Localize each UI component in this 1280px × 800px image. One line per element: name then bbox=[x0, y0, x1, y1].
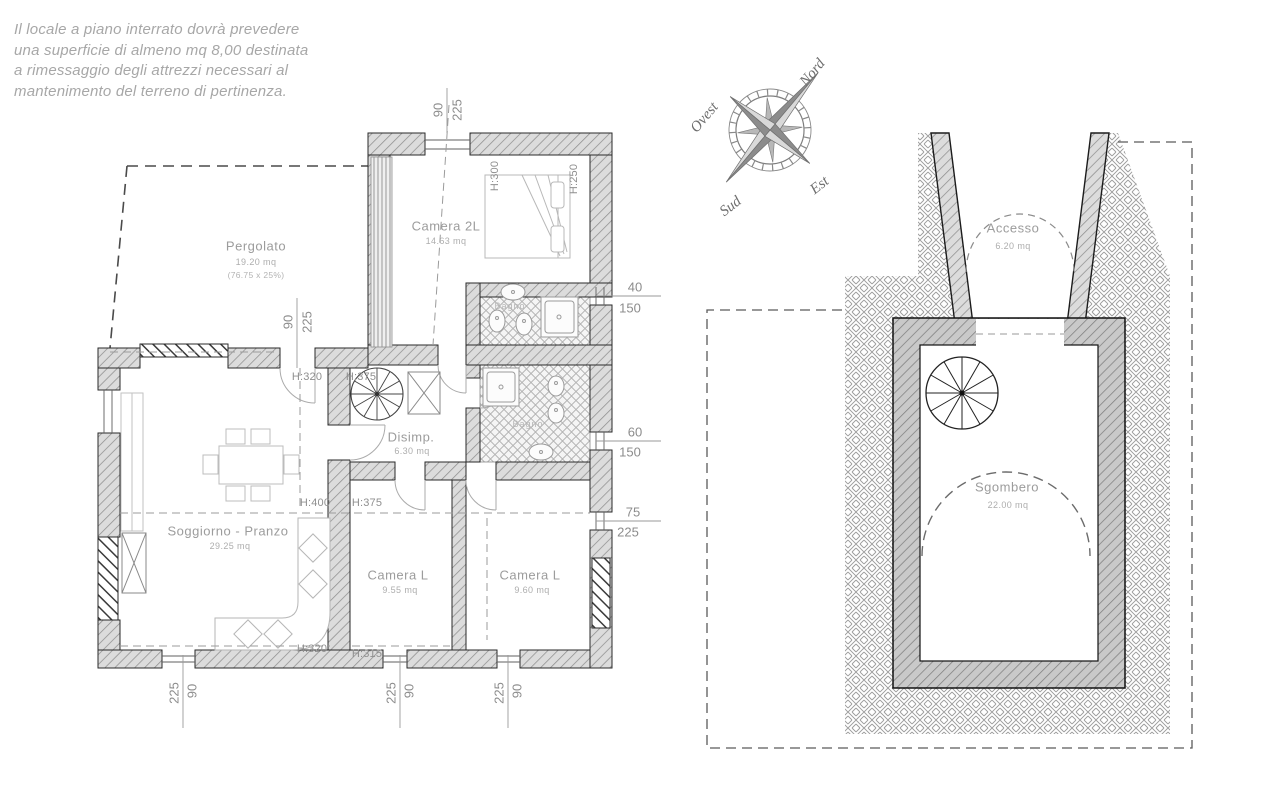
note-line: una superficie di almeno mq 8,00 destina… bbox=[14, 41, 308, 62]
fireplace-stove bbox=[122, 533, 146, 593]
window-sill-striped bbox=[140, 344, 228, 357]
height-label: H:250 bbox=[568, 164, 580, 194]
note-line: Il locale a piano interrato dovrà preved… bbox=[14, 20, 308, 41]
fireplace-striped bbox=[98, 537, 118, 620]
basement-plan bbox=[707, 133, 1192, 748]
height-label: H:375 bbox=[352, 497, 382, 509]
room-area-disimpegno: 6.30 mq bbox=[394, 446, 429, 456]
dimension-value: 90 bbox=[281, 315, 296, 329]
dimension-value: 150 bbox=[619, 445, 641, 460]
room-label-accesso: Accesso bbox=[987, 221, 1040, 236]
dimension-value: 225 bbox=[450, 99, 465, 121]
room-label-camera-l-1: Camera L bbox=[367, 568, 428, 583]
dining-table bbox=[203, 429, 299, 501]
basement-entry-opening bbox=[976, 319, 1064, 346]
dimension-value: 90 bbox=[510, 684, 525, 698]
dimension-value: 225 bbox=[492, 682, 507, 704]
room-area-camera-2l: 14.63 mq bbox=[426, 236, 467, 246]
compass-rose bbox=[686, 39, 858, 215]
room-label-soggiorno: Soggiorno - Pranzo bbox=[167, 524, 288, 539]
note-line: mantenimento del terreno di pertinenza. bbox=[14, 82, 308, 103]
room-area-sgombero: 22.00 mq bbox=[988, 500, 1029, 510]
dimension-value: 225 bbox=[617, 525, 639, 540]
room-note-pergolato: (76.75 x 25%) bbox=[228, 270, 285, 280]
room-area-camera-l-2: 9.60 mq bbox=[514, 585, 549, 595]
note-line: a rimessaggio degli attrezzi necessari a… bbox=[14, 61, 308, 82]
shaft-box bbox=[408, 372, 440, 414]
room-label-bagno-2: Bagno bbox=[512, 419, 543, 429]
height-label: H:315 bbox=[352, 648, 382, 660]
dimension-value: 90 bbox=[185, 684, 200, 698]
floor-plan-sheet: Il locale a piano interrato dovrà preved… bbox=[0, 0, 1280, 800]
room-area-soggiorno: 29.25 mq bbox=[210, 541, 251, 551]
height-label: H:300 bbox=[489, 161, 501, 191]
dimension-value: 225 bbox=[167, 682, 182, 704]
height-label: H:400 bbox=[300, 497, 330, 509]
height-label: H:320 bbox=[292, 371, 322, 383]
room-label-disimpegno: Disimp. bbox=[388, 430, 435, 445]
dimension-value: 60 bbox=[628, 425, 642, 440]
room-label-bagno-1: Bagno bbox=[494, 301, 525, 311]
kitchen-counter bbox=[121, 393, 143, 531]
dimension-value: 90 bbox=[431, 103, 446, 117]
room-area-accesso: 6.20 mq bbox=[995, 241, 1030, 251]
dimension-value: 40 bbox=[628, 280, 642, 295]
plan-note: Il locale a piano interrato dovrà preved… bbox=[14, 20, 308, 103]
room-label-camera-2l: Camera 2L bbox=[412, 219, 481, 234]
height-label: H:375 bbox=[346, 371, 376, 383]
plan-drawing bbox=[0, 0, 1280, 800]
room-label-sgombero: Sgombero bbox=[975, 480, 1039, 495]
room-area-pergolato: 19.20 mq bbox=[236, 257, 277, 267]
dimension-value: 75 bbox=[626, 505, 640, 520]
dimension-value: 150 bbox=[619, 301, 641, 316]
wardrobe bbox=[371, 157, 392, 347]
room-label-pergolato: Pergolato bbox=[226, 239, 286, 254]
room-label-camera-l-2: Camera L bbox=[499, 568, 560, 583]
dimension-value: 90 bbox=[402, 684, 417, 698]
compass-needle bbox=[686, 39, 858, 215]
dimension-value: 225 bbox=[300, 311, 315, 333]
basement-spiral-stair bbox=[926, 357, 998, 429]
height-label: H:320 bbox=[297, 643, 327, 655]
east-window-striped bbox=[592, 558, 610, 628]
room-area-camera-l-1: 9.55 mq bbox=[382, 585, 417, 595]
dimension-value: 225 bbox=[384, 682, 399, 704]
